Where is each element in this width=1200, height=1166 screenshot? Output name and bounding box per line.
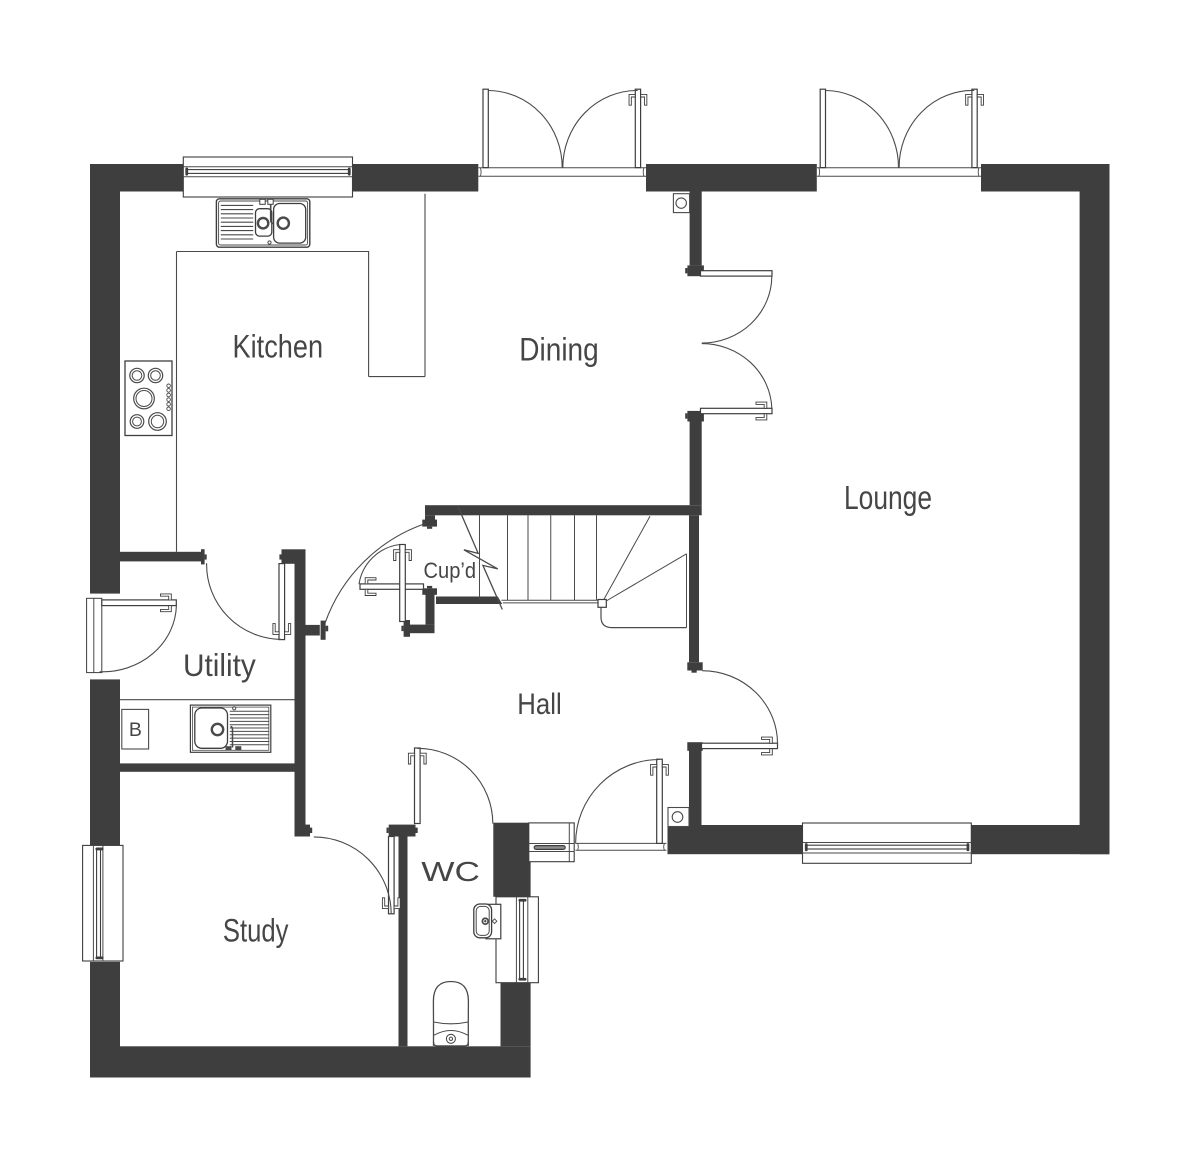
svg-text:Study: Study	[223, 912, 289, 948]
svg-text:Cup’d: Cup’d	[424, 558, 477, 583]
svg-text:Hall: Hall	[517, 688, 561, 721]
svg-text:B: B	[129, 719, 142, 741]
svg-text:WC: WC	[421, 856, 480, 887]
svg-text:Lounge: Lounge	[844, 479, 932, 516]
svg-text:Utility: Utility	[183, 647, 256, 683]
svg-text:Kitchen: Kitchen	[233, 328, 324, 364]
svg-text:Dining: Dining	[519, 331, 598, 367]
